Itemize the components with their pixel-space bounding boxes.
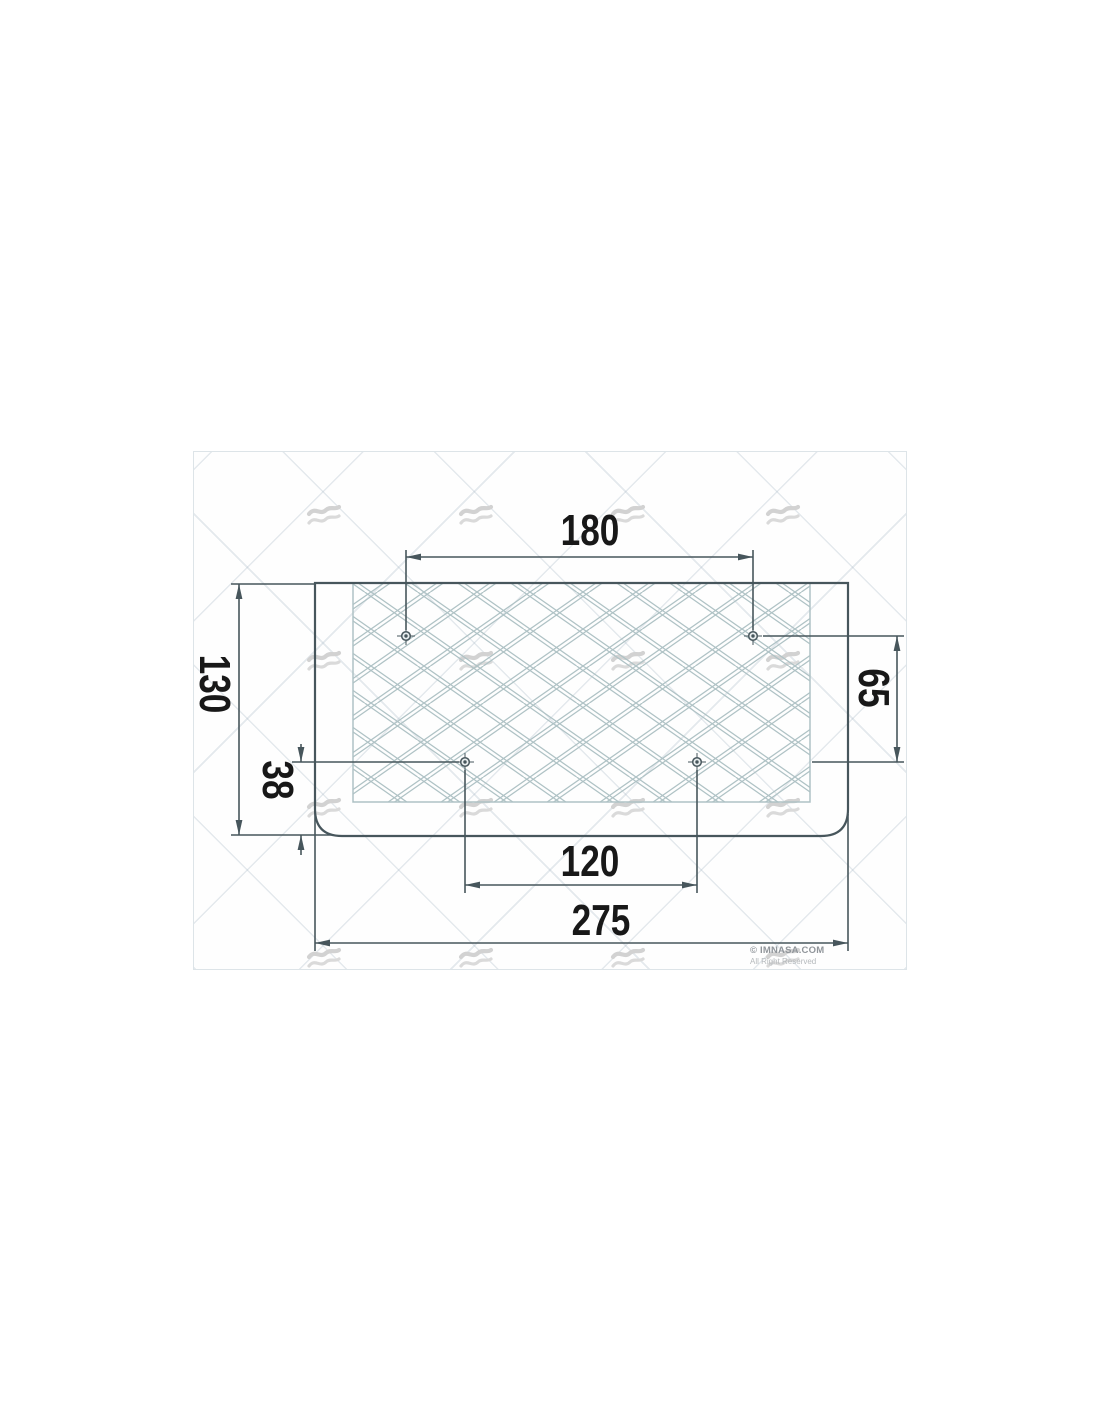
- dim-label-overall-width: 275: [572, 899, 631, 943]
- mesh-area: [353, 583, 810, 802]
- arrowhead-120-left: [465, 882, 480, 889]
- copyright-line-1: © IMNASA.COM: [750, 946, 824, 957]
- drawing-canvas: 180 130 65 38 120 275 © IMNASA.COM All R…: [0, 0, 1100, 1422]
- dim-label-top-spacing: 180: [561, 509, 620, 553]
- arrowhead-120-right: [682, 882, 697, 889]
- arrowhead-180-right: [738, 554, 753, 561]
- arrowhead-65-top: [894, 636, 901, 651]
- arrowhead-130-top: [236, 584, 243, 599]
- copyright-notice: © IMNASA.COM All Right Reserved: [750, 946, 824, 966]
- copyright-line-2: All Right Reserved: [750, 957, 824, 966]
- arrowhead-38-lower: [298, 835, 305, 850]
- arrowhead-65-bottom: [894, 747, 901, 762]
- dim-label-right-offset: 65: [851, 668, 895, 707]
- dim-label-overall-height: 130: [192, 655, 236, 714]
- fender-pad-drawing: [0, 0, 1100, 1422]
- arrowhead-130-bottom: [236, 820, 243, 835]
- arrowhead-275-left: [315, 940, 330, 947]
- arrowhead-275-right: [833, 940, 848, 947]
- dim-label-bottom-spacing: 120: [561, 840, 620, 884]
- arrowhead-180-left: [406, 554, 421, 561]
- dim-label-bottom-edge-offset: 38: [255, 760, 299, 799]
